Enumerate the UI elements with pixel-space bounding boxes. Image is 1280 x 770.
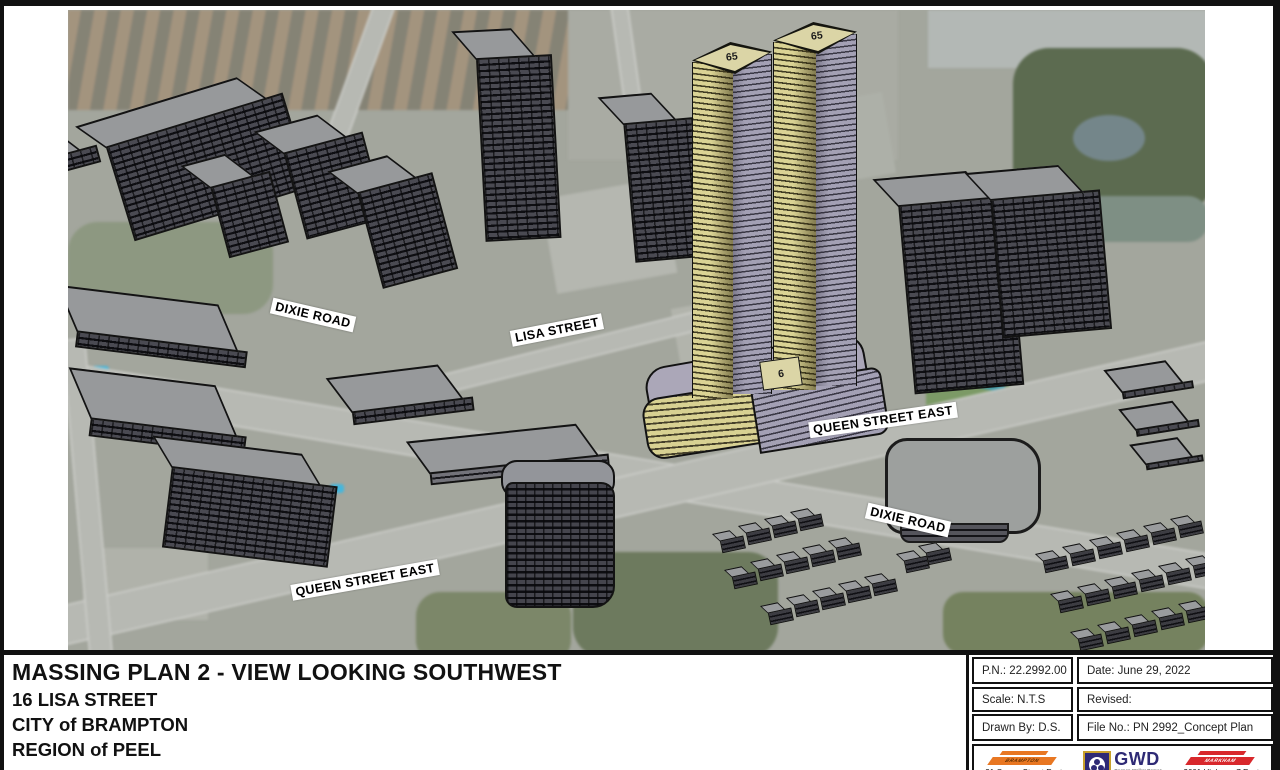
drawing-sheet: 65 65 6 DIXIE ROAD LISA STREET QUEEN STR… [0,0,1280,770]
gwd-initials: GWD [1114,751,1160,767]
proposed-tower-west: 65 [692,42,772,398]
markham-logo-icon: MARKHAM [1181,751,1261,766]
markham-office-logo: MARKHAM 3601 Highway 7 East [1181,751,1261,770]
drawn-by-cell: Drawn By: D.S. [972,714,1073,741]
titleblock-divider [0,650,1280,655]
date-cell: Date: June 29, 2022 [1077,657,1273,684]
project-address: 16 LISA STREET [12,689,562,711]
gwd-logo: GWD Gagnon Walker Domes [1083,751,1162,770]
gwd-emblem-icon [1083,751,1111,770]
sheet-title: MASSING PLAN 2 - VIEW LOOKING SOUTHWEST [12,659,562,686]
revised-cell: Revised: [1077,687,1273,712]
page-border [1273,0,1280,770]
project-region: REGION of PEEL [12,739,562,761]
project-number-cell: P.N.: 22.2992.00 [972,657,1073,684]
proposed-tower-east: 65 [773,22,857,390]
firm-logos-row: BRAMPTON 21 Queen Street East GWD Gagnon… [972,744,1273,770]
context-rowhouse [1076,626,1104,650]
scale-cell: Scale: N.T.S [972,687,1073,712]
titleblock-vertical-divider [966,653,969,770]
west-tower-storey-label: 65 [725,50,738,63]
podium-storey-label: 6 [759,356,803,390]
massing-render: 65 65 6 DIXIE ROAD LISA STREET QUEEN STR… [68,10,1205,650]
page-border [0,0,1280,6]
east-tower-storey-label: 65 [810,29,823,42]
project-municipality: CITY of BRAMPTON [12,714,562,736]
page-border [0,0,4,770]
brampton-office-logo: BRAMPTON 21 Queen Street East [984,751,1064,770]
file-no-cell: File No.: PN 2992_Concept Plan [1077,714,1273,741]
brampton-logo-icon: BRAMPTON [984,751,1064,766]
context-rowhouse [1184,598,1205,624]
title-block: MASSING PLAN 2 - VIEW LOOKING SOUTHWEST … [12,659,562,761]
